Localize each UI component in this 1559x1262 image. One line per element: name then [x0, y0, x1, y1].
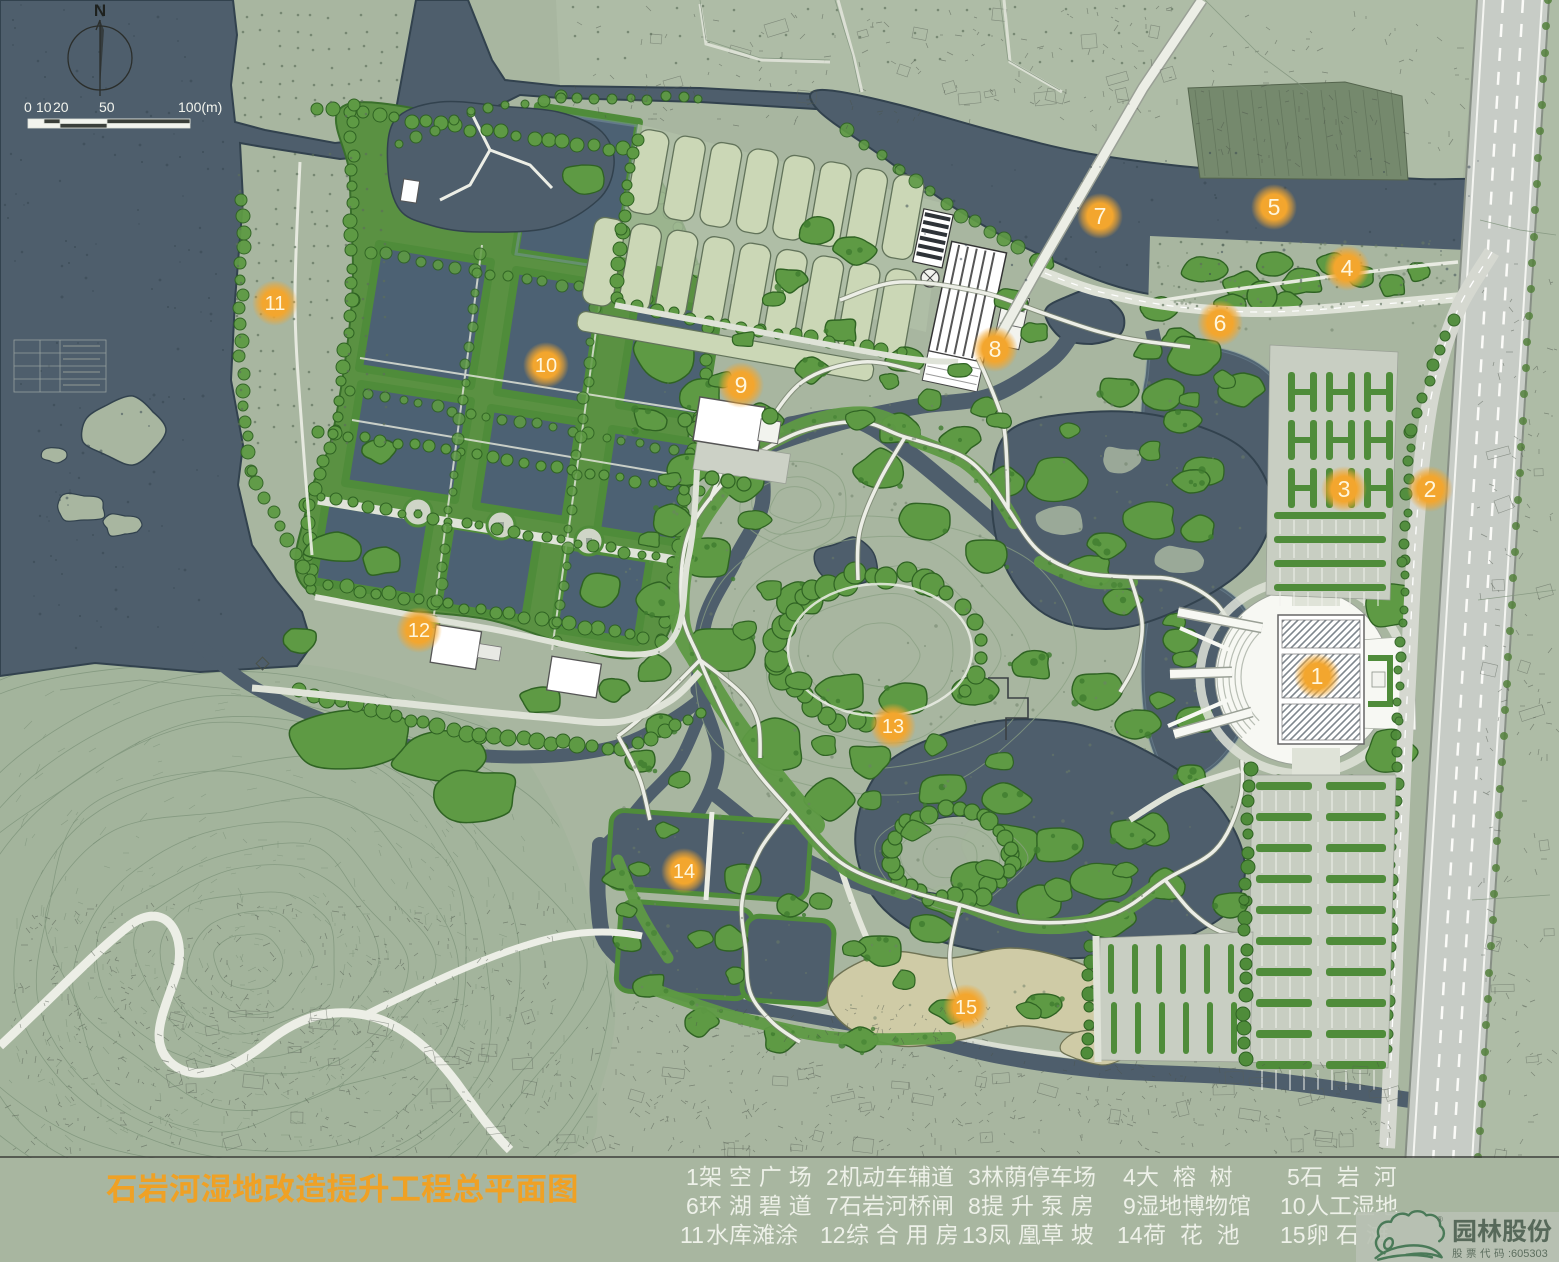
svg-text:6: 6 — [686, 1193, 699, 1219]
svg-text:4: 4 — [1341, 255, 1354, 281]
svg-text:®: ® — [1437, 1215, 1443, 1224]
svg-text:11: 11 — [680, 1222, 704, 1248]
svg-text:12: 12 — [820, 1222, 846, 1248]
svg-text:1: 1 — [1311, 663, 1324, 689]
svg-text:8: 8 — [989, 336, 1002, 362]
svg-text:15: 15 — [1280, 1222, 1306, 1248]
svg-text::605303: :605303 — [1508, 1248, 1548, 1260]
svg-text:1: 1 — [686, 1164, 699, 1190]
svg-text:4: 4 — [1123, 1164, 1136, 1190]
svg-text:14: 14 — [1117, 1222, 1143, 1248]
svg-text:3: 3 — [1338, 476, 1351, 502]
svg-text:50: 50 — [99, 99, 115, 115]
svg-text:15: 15 — [955, 997, 977, 1019]
svg-text:20: 20 — [53, 99, 69, 115]
svg-text:11: 11 — [265, 293, 286, 315]
svg-text:9: 9 — [1123, 1193, 1136, 1219]
svg-text:2: 2 — [826, 1164, 839, 1190]
svg-text:13: 13 — [962, 1222, 988, 1248]
svg-text:12: 12 — [408, 620, 430, 642]
svg-text:N: N — [94, 1, 106, 20]
svg-text:100(m): 100(m) — [178, 99, 222, 115]
svg-text:7: 7 — [1094, 203, 1107, 229]
svg-text:6: 6 — [1214, 310, 1227, 336]
svg-text:3: 3 — [968, 1164, 981, 1190]
svg-text:14: 14 — [673, 861, 695, 883]
svg-text:5: 5 — [1268, 194, 1281, 220]
svg-text:0: 0 — [24, 99, 32, 115]
svg-text:9: 9 — [735, 372, 748, 398]
svg-text:10: 10 — [1280, 1193, 1306, 1219]
svg-text:2: 2 — [1424, 476, 1437, 502]
svg-text:8: 8 — [968, 1193, 981, 1219]
svg-text:10: 10 — [535, 355, 557, 377]
svg-text:13: 13 — [882, 716, 904, 738]
svg-text:10: 10 — [36, 99, 52, 115]
svg-text:5: 5 — [1287, 1164, 1300, 1190]
svg-text:7: 7 — [826, 1193, 839, 1219]
